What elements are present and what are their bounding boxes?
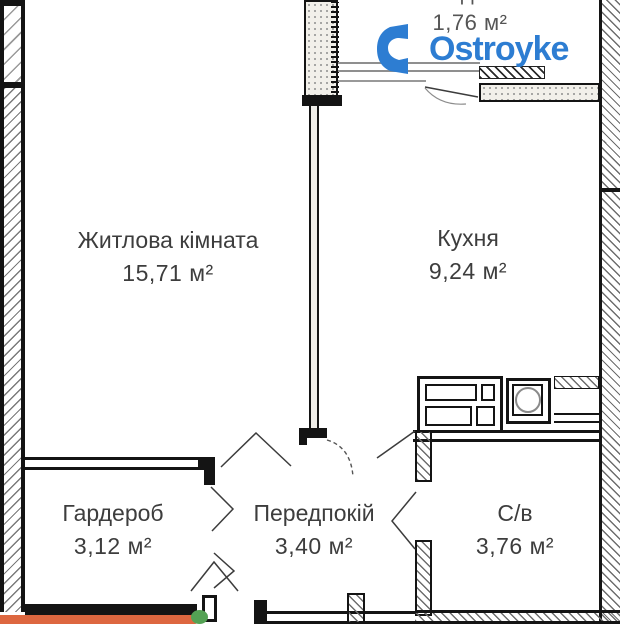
bathroom-bottom-wall	[415, 610, 620, 624]
bathroom-top-wall	[413, 430, 599, 442]
room-name: Передпокій	[228, 497, 400, 530]
loggia-sill-line-lower	[338, 80, 426, 82]
bathroom-left-wall-lower	[415, 540, 432, 616]
countertop-edge	[554, 413, 599, 423]
entrance-jamb-right	[254, 600, 267, 624]
ostroyke-logo: Ostroyke	[374, 22, 568, 76]
living-wardrobe-wall	[25, 457, 200, 470]
countertop-hatch	[554, 376, 599, 389]
right-wall-joint-tick	[599, 188, 620, 192]
left-wall-window	[0, 0, 25, 82]
bottom-pier	[347, 593, 365, 624]
left-wall	[0, 82, 25, 612]
kitchen-door-jamb-stub	[299, 428, 307, 445]
ostroyke-logo-icon	[374, 22, 420, 76]
bottom-orange-bar	[0, 615, 198, 624]
wardrobe-door-jamb	[198, 457, 215, 470]
room-label-wardrobe: Гардероб 3,12 м²	[32, 497, 194, 563]
right-wall	[599, 0, 620, 624]
room-area: 3,76 м²	[445, 530, 585, 563]
bathroom-left-wall-upper	[415, 430, 432, 482]
room-label-kitchen: Кухня 9,24 м²	[392, 222, 544, 288]
room-name: Гардероб	[32, 497, 194, 530]
loggia-pier-cap	[302, 95, 342, 106]
living-kitchen-partition	[309, 106, 319, 430]
loggia-pier-zipper-edge	[331, 2, 339, 98]
room-area: 3,40 м²	[228, 530, 400, 563]
room-name: С/в	[445, 497, 585, 530]
hallway-bottom-wall	[267, 611, 415, 624]
kitchen-cabinets	[417, 376, 503, 433]
cabinet-unit	[481, 384, 495, 401]
room-area: 3,12 м²	[32, 530, 194, 563]
room-label-hallway: Передпокій 3,40 м²	[228, 497, 400, 563]
room-label-living: Житлова кімната 15,71 м²	[36, 224, 300, 290]
washing-machine-drum	[515, 387, 541, 413]
room-name: Житлова кімната	[36, 224, 300, 257]
wardrobe-door-jamb-stub	[204, 470, 215, 485]
cabinet-unit	[476, 406, 495, 426]
floor-plan: Житлова кімната 15,71 м² Кухня 9,24 м² Л…	[0, 0, 620, 624]
room-area: 9,24 м²	[392, 255, 544, 288]
kitchen-top-wall	[479, 83, 600, 102]
room-name: Лоджія	[400, 0, 540, 8]
washing-machine	[506, 378, 551, 424]
bottom-green-dot	[191, 610, 208, 624]
cabinet-unit	[425, 406, 472, 426]
ostroyke-logo-text: Ostroyke	[429, 30, 568, 69]
room-area: 15,71 м²	[36, 257, 300, 290]
room-label-bathroom: С/в 3,76 м²	[445, 497, 585, 563]
room-name: Кухня	[392, 222, 544, 255]
cabinet-unit	[425, 384, 477, 401]
